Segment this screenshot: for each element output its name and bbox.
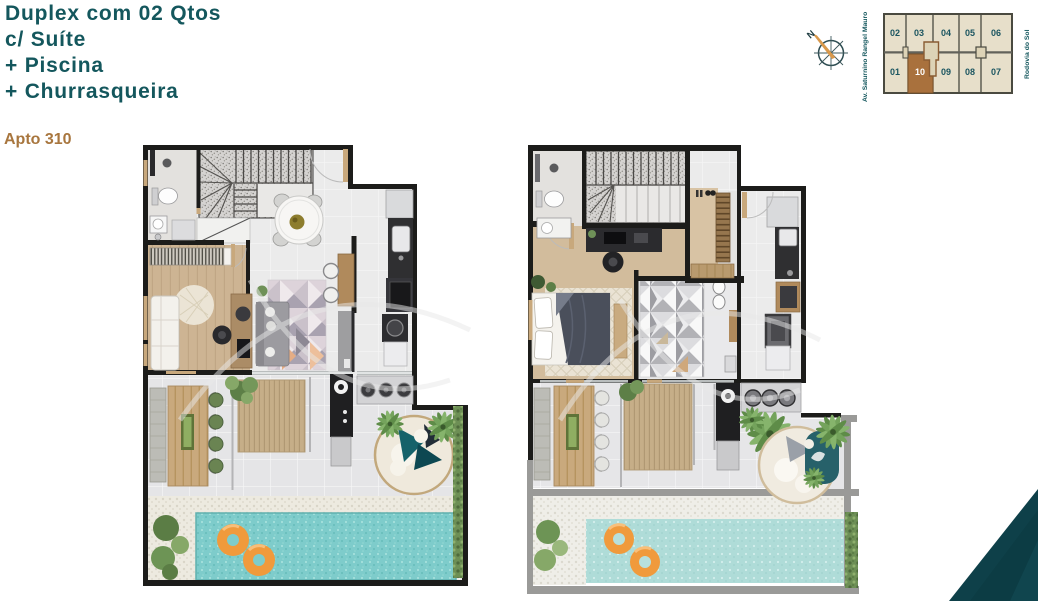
svg-text:09: 09	[941, 67, 951, 77]
svg-text:N: N	[805, 28, 817, 41]
svg-text:08: 08	[965, 67, 975, 77]
svg-text:04: 04	[941, 28, 951, 38]
svg-text:Av. Saturnino Rangel Mauro: Av. Saturnino Rangel Mauro	[862, 12, 869, 102]
svg-text:03: 03	[914, 28, 924, 38]
svg-text:10: 10	[915, 67, 925, 77]
svg-text:07: 07	[991, 67, 1001, 77]
svg-text:05: 05	[965, 28, 975, 38]
svg-text:02: 02	[890, 28, 900, 38]
svg-text:06: 06	[991, 28, 1001, 38]
svg-text:Rodovia do Sol: Rodovia do Sol	[1024, 29, 1031, 79]
svg-text:01: 01	[890, 67, 900, 77]
